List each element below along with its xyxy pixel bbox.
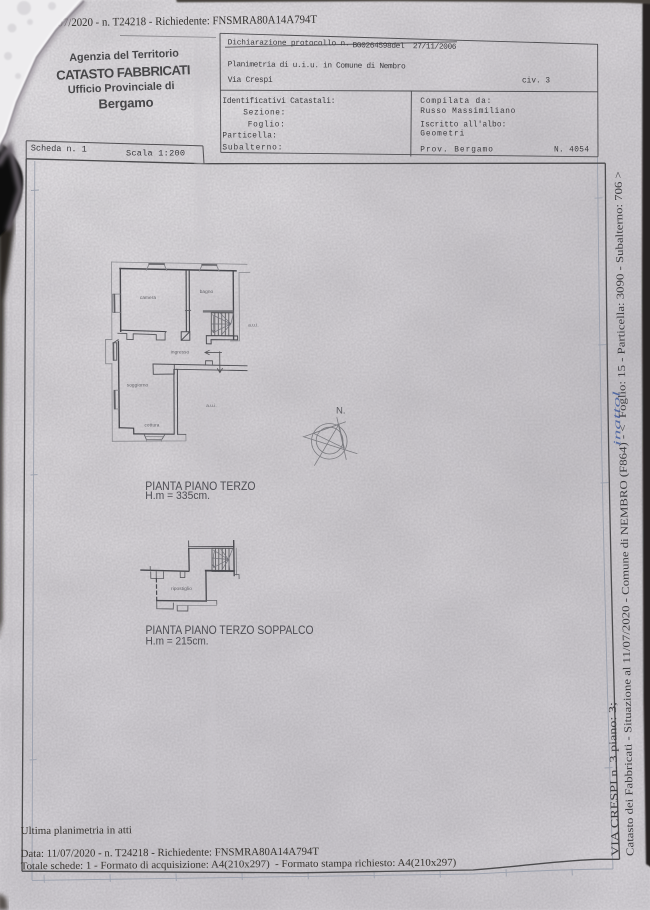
svg-text:Identificativi Catastali:: Identificativi Catastali: [222, 98, 335, 106]
svg-text:H.m = 215cm.: H.m = 215cm. [146, 636, 209, 648]
svg-text:Scheda n. 1: Scheda n. 1 [31, 143, 87, 154]
svg-text:Data: 11/07/2020 - n. T24218 -: Data: 11/07/2020 - n. T24218 - Richieden… [21, 846, 320, 860]
svg-text:Prov. Bergamo: Prov. Bergamo [420, 147, 493, 155]
svg-text:N. 4054: N. 4054 [554, 146, 589, 154]
svg-text:civ. 3: civ. 3 [522, 78, 550, 86]
svg-text:camera: camera [140, 295, 157, 300]
svg-text:Bergamo: Bergamo [98, 95, 154, 112]
svg-text:Russo Massimiliano: Russo Massimiliano [420, 108, 515, 116]
svg-text:Sezione:: Sezione: [243, 110, 285, 118]
svg-text:Ultima planimetria in atti: Ultima planimetria in atti [21, 825, 132, 837]
svg-text:cottura: cottura [144, 422, 159, 427]
svg-text:Dichiarazione protocollo n.: Dichiarazione protocollo n. [228, 39, 350, 48]
svg-text:Foglio:: Foglio: [248, 122, 285, 130]
svg-text:Via Crespi: Via Crespi [228, 77, 273, 85]
svg-text:H.m = 335cm.: H.m = 335cm. [145, 490, 210, 502]
svg-text:bagno: bagno [200, 289, 214, 294]
svg-text:Subalterno:: Subalterno: [222, 145, 282, 153]
svg-text:BG0264598del 27/11/2006: BG0264598del 27/11/2006 [352, 42, 456, 52]
svg-text:Compilata da:: Compilata da: [420, 98, 491, 106]
svg-text:ripostiglio: ripostiglio [171, 586, 192, 591]
svg-text:a.u.i.: a.u.i. [206, 403, 217, 408]
svg-text:N.: N. [336, 406, 346, 417]
svg-text:Scala 1:200: Scala 1:200 [126, 148, 185, 158]
svg-text:Geometri: Geometri [420, 131, 464, 139]
svg-text:Iscritto all'albo:: Iscritto all'albo: [420, 122, 506, 130]
svg-text:soggiorno: soggiorno [127, 382, 149, 387]
svg-text:inattol: inattol [612, 391, 624, 447]
svg-text:ingresso: ingresso [171, 349, 190, 354]
svg-text:a.u.i.: a.u.i. [248, 322, 259, 327]
svg-text:Particella:: Particella: [222, 132, 277, 140]
